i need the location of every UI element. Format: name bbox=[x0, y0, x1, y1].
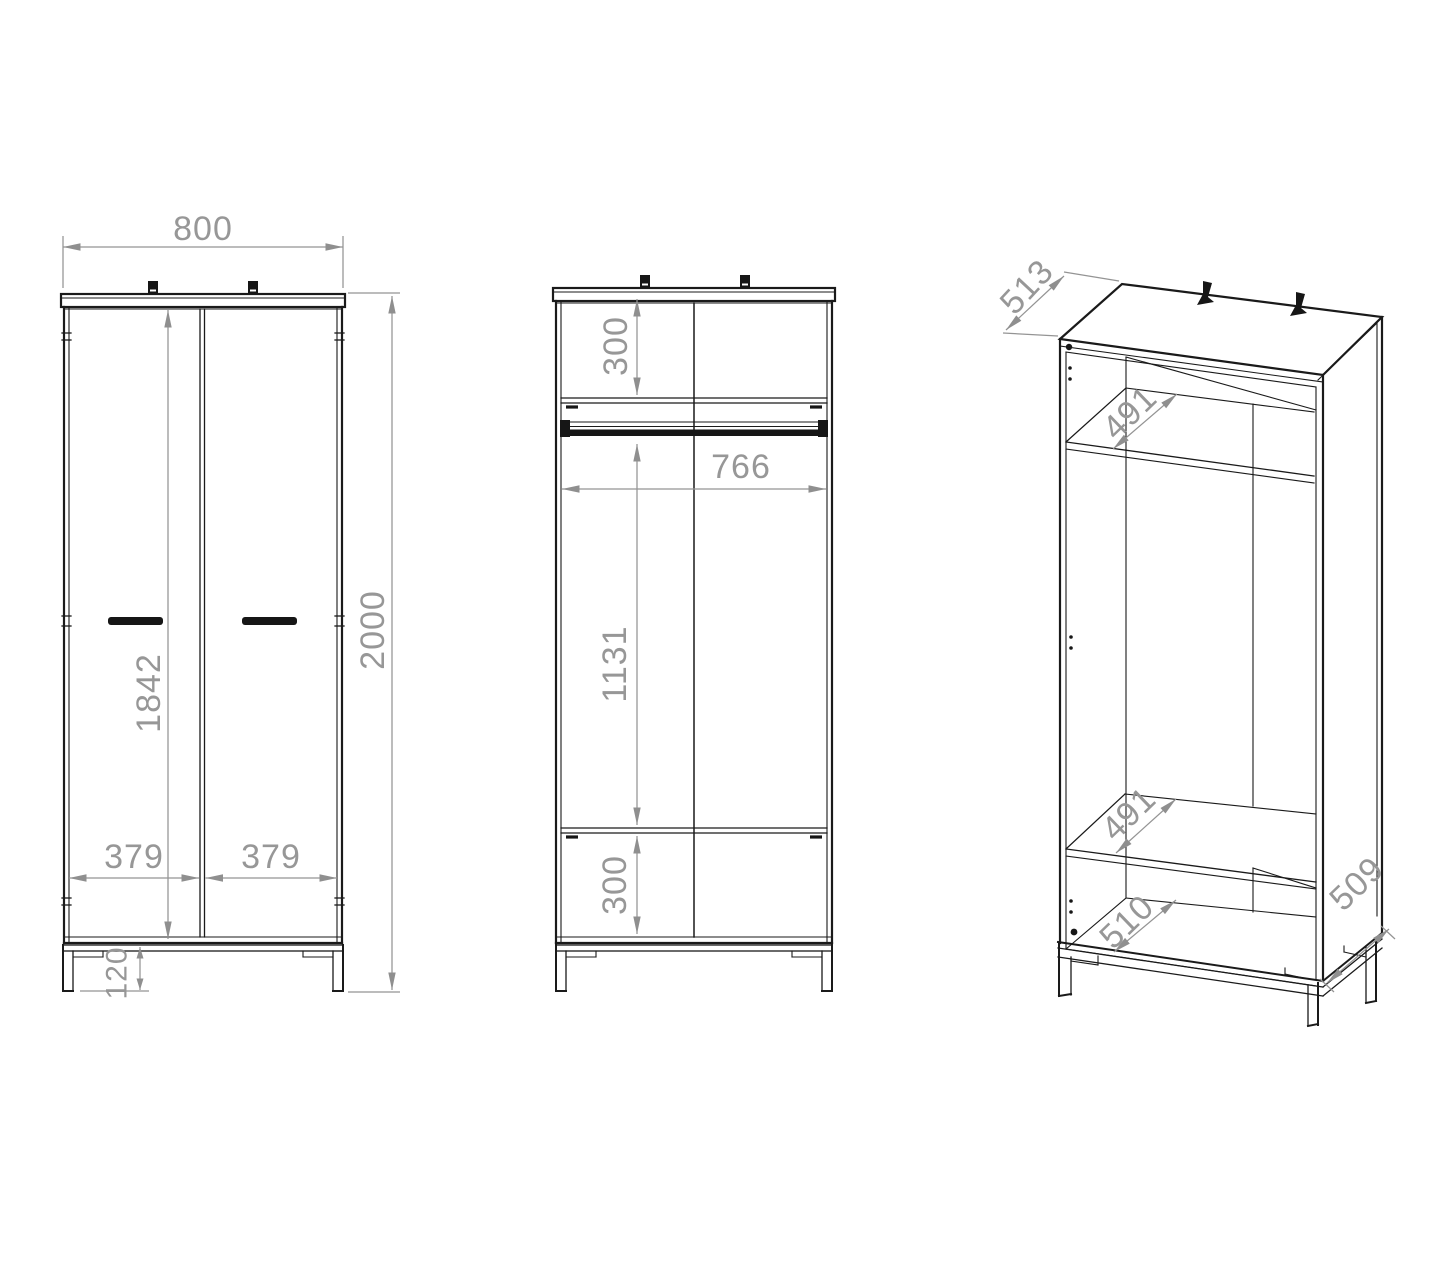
dim-leg-height: 120 bbox=[101, 946, 134, 999]
drawing-canvas: 800 2000 1842 379 379 120 bbox=[0, 0, 1445, 1288]
dim-bottom-shelf-depth: 491 bbox=[1094, 780, 1163, 849]
front-dimensions: 800 2000 1842 379 379 120 bbox=[63, 210, 400, 1000]
dim-top-depth: 513 bbox=[993, 252, 1062, 322]
section-top-panel bbox=[553, 288, 835, 301]
dim-top-shelf-depth: 491 bbox=[1095, 379, 1164, 448]
front-door-handles bbox=[108, 617, 297, 625]
iso-bottom-shelf bbox=[1066, 794, 1316, 889]
dim-bottom-panel-depth: 510 bbox=[1092, 888, 1161, 957]
dim-left-door-width: 379 bbox=[104, 838, 164, 876]
section-carcass bbox=[556, 301, 832, 943]
dim-front-width: 800 bbox=[173, 210, 233, 248]
dim-front-interior-height: 1842 bbox=[130, 653, 168, 733]
front-wall-clips bbox=[148, 281, 258, 294]
dim-right-door-width: 379 bbox=[241, 838, 301, 876]
right-door-handle bbox=[242, 617, 297, 625]
front-door-gap bbox=[200, 309, 205, 937]
front-hinge-marks bbox=[62, 333, 344, 905]
iso-wall-clips bbox=[1197, 281, 1307, 316]
dim-interior-width: 766 bbox=[711, 448, 771, 486]
dim-front-height: 2000 bbox=[354, 590, 392, 670]
section-legs bbox=[556, 945, 832, 991]
iso-top-panel bbox=[1060, 284, 1382, 375]
front-top-panel bbox=[61, 294, 345, 307]
front-view: 800 2000 1842 379 379 120 bbox=[61, 210, 400, 1000]
isometric-view: 513 491 491 510 509 bbox=[993, 252, 1395, 1026]
dim-hanging-space: 1131 bbox=[596, 625, 634, 702]
iso-legs bbox=[1058, 939, 1382, 1026]
section-view: 300 766 1131 300 bbox=[553, 275, 835, 991]
wardrobe-technical-drawing: 800 2000 1842 379 379 120 bbox=[0, 0, 1445, 1288]
dim-top-compartment: 300 bbox=[597, 316, 635, 376]
dim-bottom-compartment: 300 bbox=[596, 855, 634, 915]
left-door-handle bbox=[108, 617, 163, 625]
iso-top-shelf bbox=[1066, 388, 1314, 483]
section-wall-clips bbox=[640, 275, 750, 288]
